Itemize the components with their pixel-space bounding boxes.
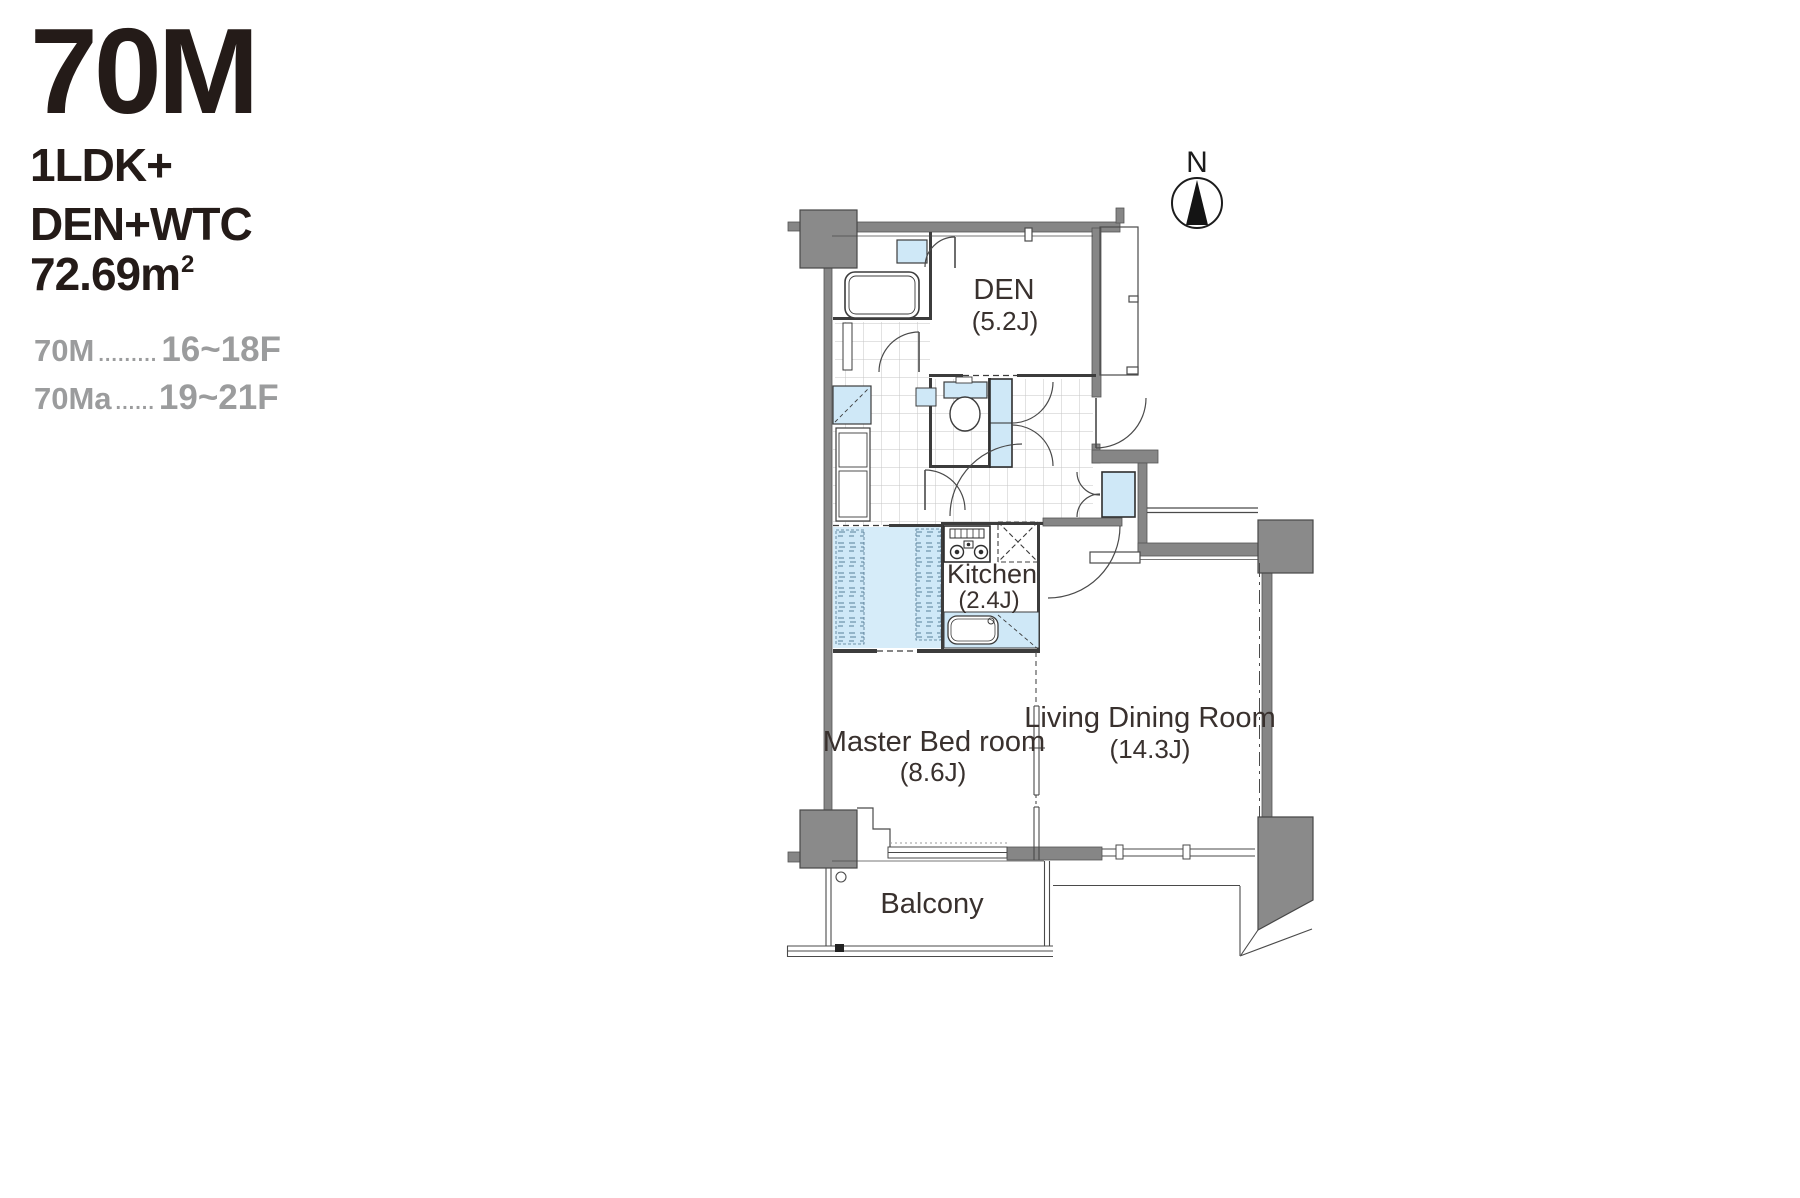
floorplan-drawing: N DEN (5.2J) Kitchen (2.4J) Master Bed r… (0, 0, 1800, 1198)
leader-dots: ...... (116, 392, 155, 415)
room-size-living-dining: (14.3J) (1110, 734, 1191, 764)
room-label-balcony: Balcony (880, 888, 984, 920)
bath-counter (843, 323, 852, 370)
floor-row-label: 70Ma (34, 381, 112, 417)
stove (944, 526, 990, 562)
floor-row-70ma: 70Ma ...... 19~21F (34, 378, 281, 426)
room-size-den: (5.2J) (972, 306, 1038, 336)
compass: N (1172, 146, 1222, 228)
room-label-kitchen: Kitchen (947, 559, 1037, 589)
area-superscript: 2 (181, 251, 193, 278)
balcony-outline (787, 861, 1312, 957)
floor-listing: 70M ......... 16~18F 70Ma ...... 19~21F (34, 330, 281, 426)
walk-through-closet (833, 527, 941, 648)
leader-dots: ......... (98, 344, 157, 367)
room-label-living-dining: Living Dining Room (1024, 702, 1275, 734)
hanger-rack (836, 530, 864, 644)
column (800, 210, 857, 268)
plan-code: 70M (30, 10, 255, 132)
plan-type-line2: DEN+WTC (30, 199, 255, 250)
column (1258, 817, 1313, 930)
title-block: 70M 1LDK+ DEN+WTC 72.69m2 (30, 10, 255, 300)
plan-type-line1: 1LDK+ (30, 140, 255, 191)
bathtub (845, 272, 919, 318)
entrance-closet (1102, 472, 1135, 517)
bath-window (897, 240, 927, 263)
toilet-tank (944, 382, 987, 398)
kitchen-sink (948, 616, 998, 644)
room-size-master-bedroom: (8.6J) (900, 757, 966, 787)
hanger-rack (916, 529, 941, 640)
refrigerator-space (998, 522, 1038, 562)
room-label-master-bedroom: Master Bed room (823, 726, 1045, 758)
wall-step (857, 808, 890, 847)
floor-row-label: 70M (34, 333, 94, 369)
floorplan-page: 70M 1LDK+ DEN+WTC 72.69m2 70M ......... … (0, 0, 1800, 1198)
floor-row-range: 16~18F (161, 330, 281, 370)
area-value: 72.69m (30, 248, 180, 300)
room-label-den: DEN (973, 274, 1034, 306)
compass-north-label: N (1186, 146, 1208, 179)
floor-row-range: 19~21F (159, 378, 279, 418)
column (800, 810, 857, 868)
balcony-drain (836, 872, 846, 882)
toilet-shelf (916, 388, 936, 406)
column (1258, 520, 1313, 573)
plan-area: 72.69m2 (30, 249, 255, 300)
door-swing-entrance (1096, 398, 1146, 448)
room-size-kitchen: (2.4J) (958, 587, 1019, 614)
floor-row-70m: 70M ......... 16~18F (34, 330, 281, 378)
toilet-bowl (950, 397, 980, 431)
